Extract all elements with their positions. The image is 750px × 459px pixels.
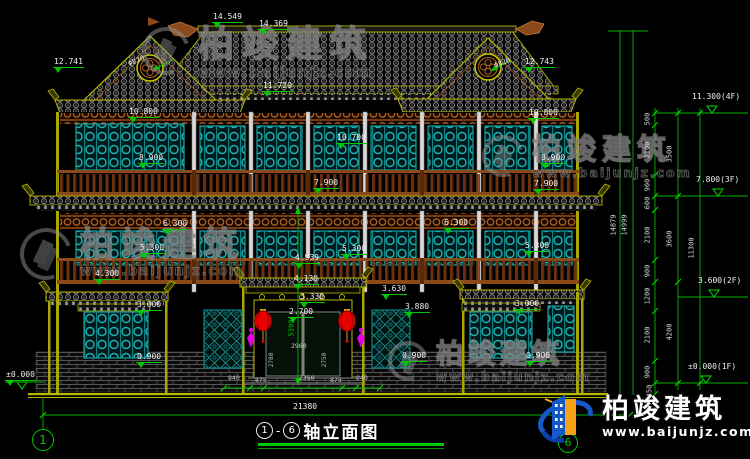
dim-5300-center: 5.300 — [341, 245, 367, 255]
dim-pm0000-left: ±0.000 — [5, 371, 36, 381]
total-14879: 14879 — [611, 214, 618, 235]
dim-2780: 2780 — [269, 353, 275, 367]
seg-2100-a: 2100 — [645, 142, 652, 159]
dim-940-right: 940 — [356, 375, 368, 382]
seg-2100-b: 2100 — [645, 227, 652, 244]
dim-8900-left: 8.900 — [138, 154, 164, 164]
dim-3000-left: 3.000 — [136, 301, 162, 311]
cad-elevation-drawing: 柏竣建筑 www.baijunjz.com 柏竣建筑 www.baijunjz.… — [0, 0, 750, 459]
seg-2100-c: 2100 — [645, 327, 652, 344]
dim-12743: 12.743 — [524, 58, 555, 68]
dim-6300-left: 6.300 — [162, 220, 188, 230]
dim-875-left: 875 — [255, 377, 267, 384]
company-logo: 柏竣建筑 www.baijunjz.com — [534, 388, 750, 446]
level-1f: ±0.000(1F) — [688, 363, 736, 371]
dim-7900-right: 7.900 — [533, 180, 559, 190]
seg-3600: 3600 — [667, 231, 674, 248]
dim-875-right: 875 — [330, 377, 342, 384]
dim-940-left: 940 — [228, 375, 240, 382]
seg-900-a: 900 — [645, 179, 652, 192]
seg-600: 600 — [645, 197, 652, 210]
dim-4300: 4.300 — [94, 270, 120, 280]
seg-1200: 1200 — [645, 288, 652, 305]
level-4f: 11.300(4F) — [692, 93, 740, 101]
dim-6300-right: 6.300 — [443, 219, 469, 229]
dim-0900-mid: 0.900 — [401, 352, 427, 362]
dim-phi820-right: Φ820 — [493, 57, 511, 70]
title-label: 轴立面图 — [303, 418, 379, 443]
title-underline — [258, 443, 444, 446]
title-underline-2 — [258, 448, 444, 450]
seg-900-b: 900 — [645, 265, 652, 278]
dim-14369: 14.369 — [258, 20, 289, 30]
dim-2750: 2750 — [322, 353, 328, 367]
level-3f: 7.800(3F) — [696, 176, 739, 184]
drawing-title: 1 - 6 轴立面图 — [256, 418, 379, 443]
dim-10800-left: 10.800 — [128, 108, 159, 118]
company-logo-icon — [534, 388, 596, 446]
dim-2700: 2.700 — [288, 308, 314, 318]
dim-4939: 4.939 — [294, 254, 320, 264]
seg-3500: 3500 — [667, 146, 674, 163]
seg-11300: 11300 — [689, 237, 696, 258]
dim-5300-left: 5.300 — [139, 244, 165, 254]
dim-10800-right: 10.800 — [528, 109, 559, 119]
dim-3000-right: 3.000 — [514, 300, 540, 310]
dim-0900-left: 0.900 — [136, 353, 162, 363]
dim-4130: 4.130 — [293, 275, 319, 285]
dim-3880: 3.880 — [404, 303, 430, 313]
dim-7900-left: 7.900 — [313, 179, 339, 189]
seg-4200: 4200 — [667, 324, 674, 341]
seg-500: 500 — [645, 113, 652, 126]
dim-5399: 5399 — [289, 320, 296, 337]
title-axis-start: 1 — [256, 422, 273, 439]
dim-3630: 3.630 — [381, 285, 407, 295]
total-14999: 14999 — [622, 214, 629, 235]
company-logo-brand: 柏竣建筑 — [602, 395, 750, 425]
dim-12741: 12.741 — [53, 58, 84, 68]
dim-8900-right: 8.900 — [540, 154, 566, 164]
company-logo-url: www.baijunjz.com — [602, 424, 750, 439]
title-axis-end: 6 — [283, 422, 300, 439]
dim-2960: 2960 — [291, 343, 307, 350]
dim-5300-right: 5.300 — [524, 242, 550, 252]
dim-0900-right: 0.900 — [525, 352, 551, 362]
dim-2350: 2350 — [299, 375, 315, 382]
title-separator: - — [276, 424, 280, 438]
dim-21380: 21380 — [293, 403, 317, 411]
seg-900-c: 900 — [645, 366, 652, 379]
dim-14549: 14.549 — [212, 13, 243, 23]
dim-phi820-left: Φ820 — [127, 55, 145, 68]
dim-11720: 11.720 — [262, 82, 293, 92]
level-2f: 3.600(2F) — [698, 277, 741, 285]
dim-3330: 3.330 — [299, 293, 325, 303]
dim-10700: 10.700 — [336, 134, 367, 144]
